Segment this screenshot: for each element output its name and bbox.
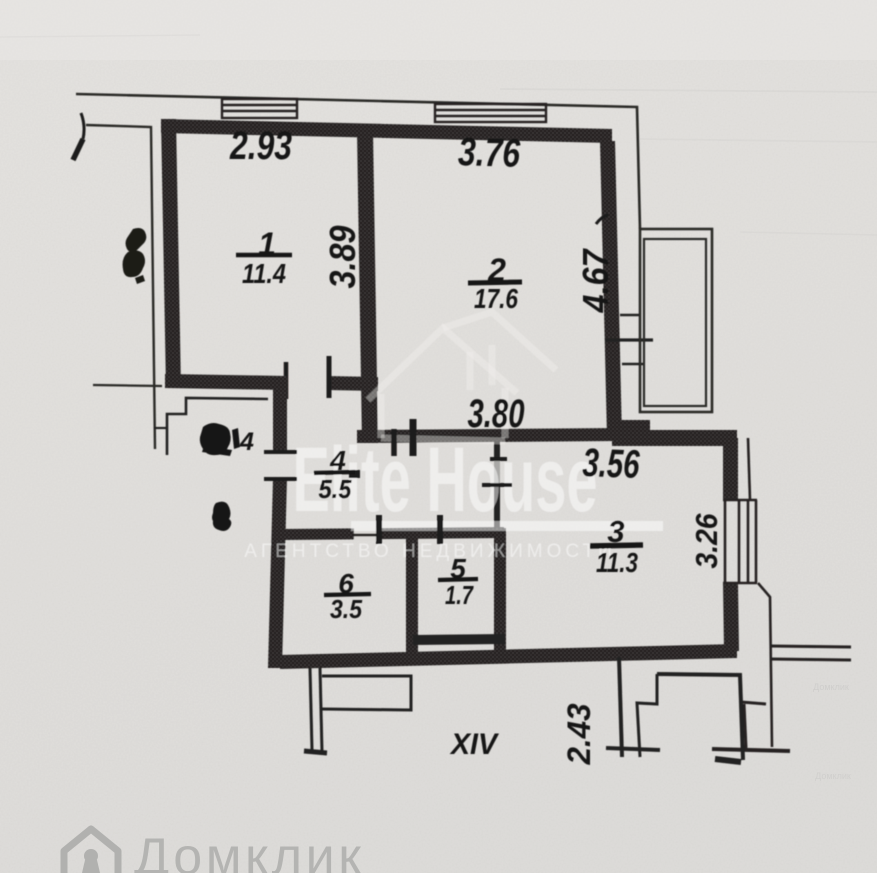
svg-text:Домклик: Домклик [815, 771, 851, 781]
svg-text:2.43: 2.43 [561, 703, 597, 765]
svg-text:XIV: XIV [449, 728, 500, 761]
svg-text:5.5: 5.5 [319, 474, 352, 504]
svg-text:4.67: 4.67 [575, 248, 616, 314]
svg-text:11.4: 11.4 [242, 258, 286, 289]
svg-text:3.26: 3.26 [689, 513, 724, 569]
svg-text:1.7: 1.7 [445, 580, 474, 610]
svg-text:3.56: 3.56 [582, 441, 641, 487]
svg-text:11.3: 11.3 [596, 547, 638, 578]
svg-text:3.89: 3.89 [322, 226, 363, 289]
svg-text:17.6: 17.6 [474, 283, 518, 314]
svg-text:АГЕНТСТВО НЕДВИЖИМОСТИ: АГЕНТСТВО НЕДВИЖИМОСТИ [244, 541, 616, 562]
svg-text:4: 4 [239, 428, 254, 456]
svg-text:Домклик: Домклик [813, 682, 849, 692]
svg-text:Домклик: Домклик [134, 828, 364, 873]
svg-text:2.93: 2.93 [229, 124, 292, 168]
svg-text:3.5: 3.5 [330, 594, 362, 624]
svg-text:3.80: 3.80 [468, 392, 525, 436]
svg-text:3.76: 3.76 [458, 130, 522, 176]
